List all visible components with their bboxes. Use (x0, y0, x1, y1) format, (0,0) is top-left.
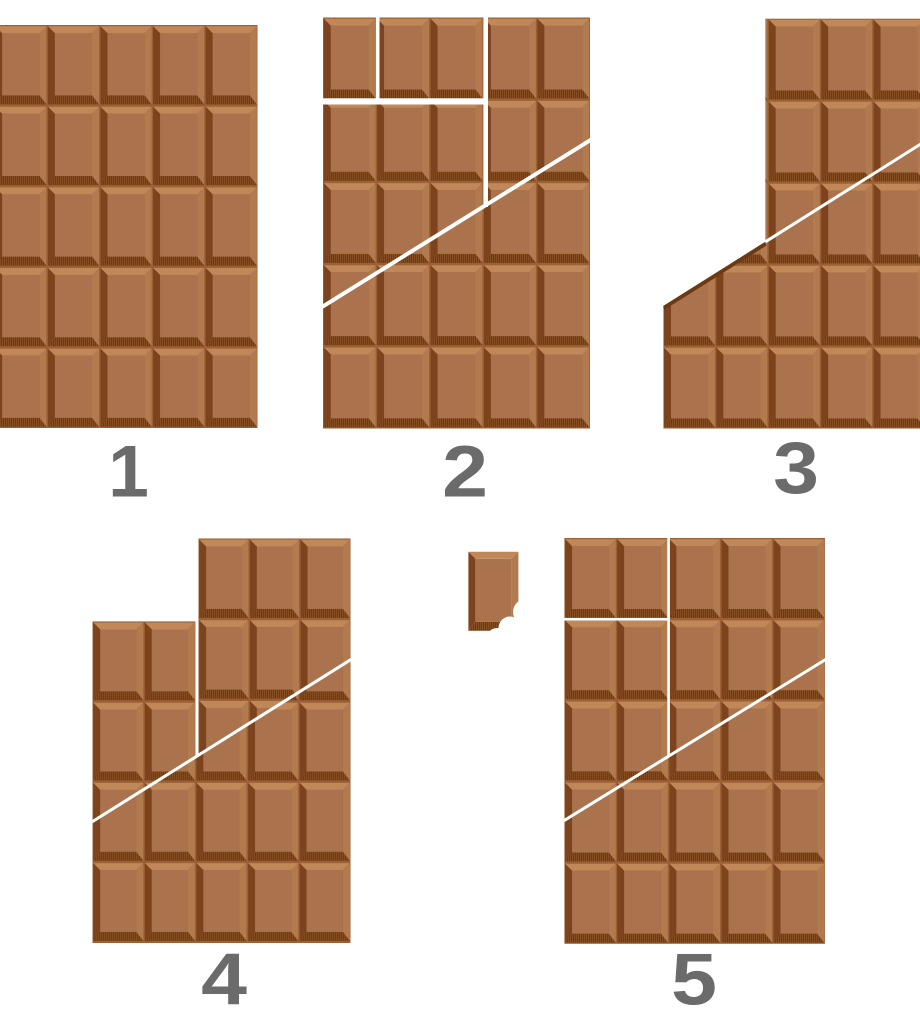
svg-text:1: 1 (108, 432, 149, 513)
svg-text:2: 2 (442, 430, 488, 512)
svg-text:4: 4 (201, 938, 247, 1020)
svg-text:3: 3 (773, 426, 819, 508)
svg-text:5: 5 (671, 938, 717, 1020)
